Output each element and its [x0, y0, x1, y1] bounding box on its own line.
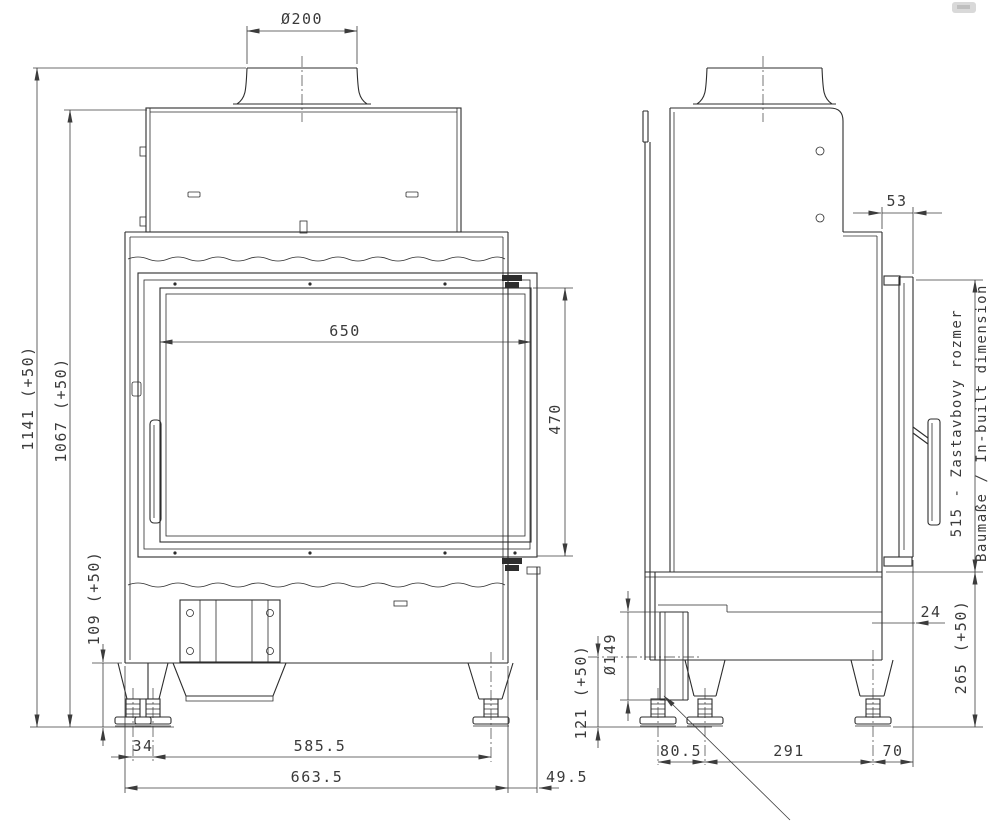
- frame-bracket-top: [884, 276, 900, 285]
- dim-frame-overhang: 49.5: [546, 768, 588, 786]
- note-inbuilt-de-en: Baumaße / In-built dimension: [974, 284, 990, 562]
- dim-plinth-height: 265 (+50): [952, 600, 970, 695]
- dim-base-height: 109 (+50): [85, 551, 103, 646]
- dim-feet-span-side: 291: [773, 742, 805, 760]
- dim-body-height: 1067 (+50): [52, 357, 70, 462]
- frame-bracket-bottom: [884, 557, 912, 566]
- body-front: [125, 232, 508, 663]
- ash-pan: [173, 663, 286, 696]
- door-front: [132, 273, 537, 571]
- side-view: 53 515 - Zastavbovy rozmer Baumaße / In-…: [572, 56, 990, 820]
- dim-air-intake-height: 121 (+50): [572, 645, 590, 740]
- dim-air-intake-diameter: Ø149: [601, 633, 619, 675]
- fireplace-drawing: Ø200 1141 (+50) 1067 (+50) 109 (+50) 650…: [0, 0, 999, 822]
- flue-collar-side: [693, 56, 836, 122]
- dim-frame-thickness: 24: [920, 603, 941, 621]
- side-dimensions: 53 515 - Zastavbovy rozmer Baumaße / In-…: [572, 192, 990, 767]
- dim-feet-span-front: 585.5: [294, 737, 347, 755]
- dim-glass-width: 650: [329, 322, 361, 340]
- body-side: [643, 108, 882, 660]
- dim-frame-depth: 53: [886, 192, 907, 210]
- door-handle-side: [928, 419, 940, 525]
- front-view: Ø200 1141 (+50) 1067 (+50) 109 (+50) 650…: [19, 10, 588, 793]
- dim-rear-foot-offset: 34: [132, 737, 153, 755]
- door-latch-top: [502, 275, 522, 281]
- dim-front-foot-offset: 70: [882, 742, 903, 760]
- note-inbuilt-sk: 515 - Zastavbovy rozmer: [949, 309, 965, 537]
- technical-drawing-page: Ø200 1141 (+50) 1067 (+50) 109 (+50) 650…: [0, 0, 999, 822]
- door-frame-side: [884, 276, 940, 566]
- dim-flue-diameter: Ø200: [281, 10, 323, 28]
- dim-overall-height: 1141 (+50): [19, 345, 37, 450]
- mounting-plate: [180, 600, 280, 662]
- dim-glass-height: 470: [546, 403, 564, 435]
- door-handle-front: [150, 420, 161, 523]
- dim-overall-width: 663.5: [291, 768, 344, 786]
- convection-box: [140, 108, 461, 233]
- door-latch-bottom: [502, 558, 522, 564]
- dim-rear-feet-spacing: 80.5: [660, 742, 702, 760]
- logo-mark: [952, 2, 976, 13]
- hinge-clip: [132, 382, 141, 396]
